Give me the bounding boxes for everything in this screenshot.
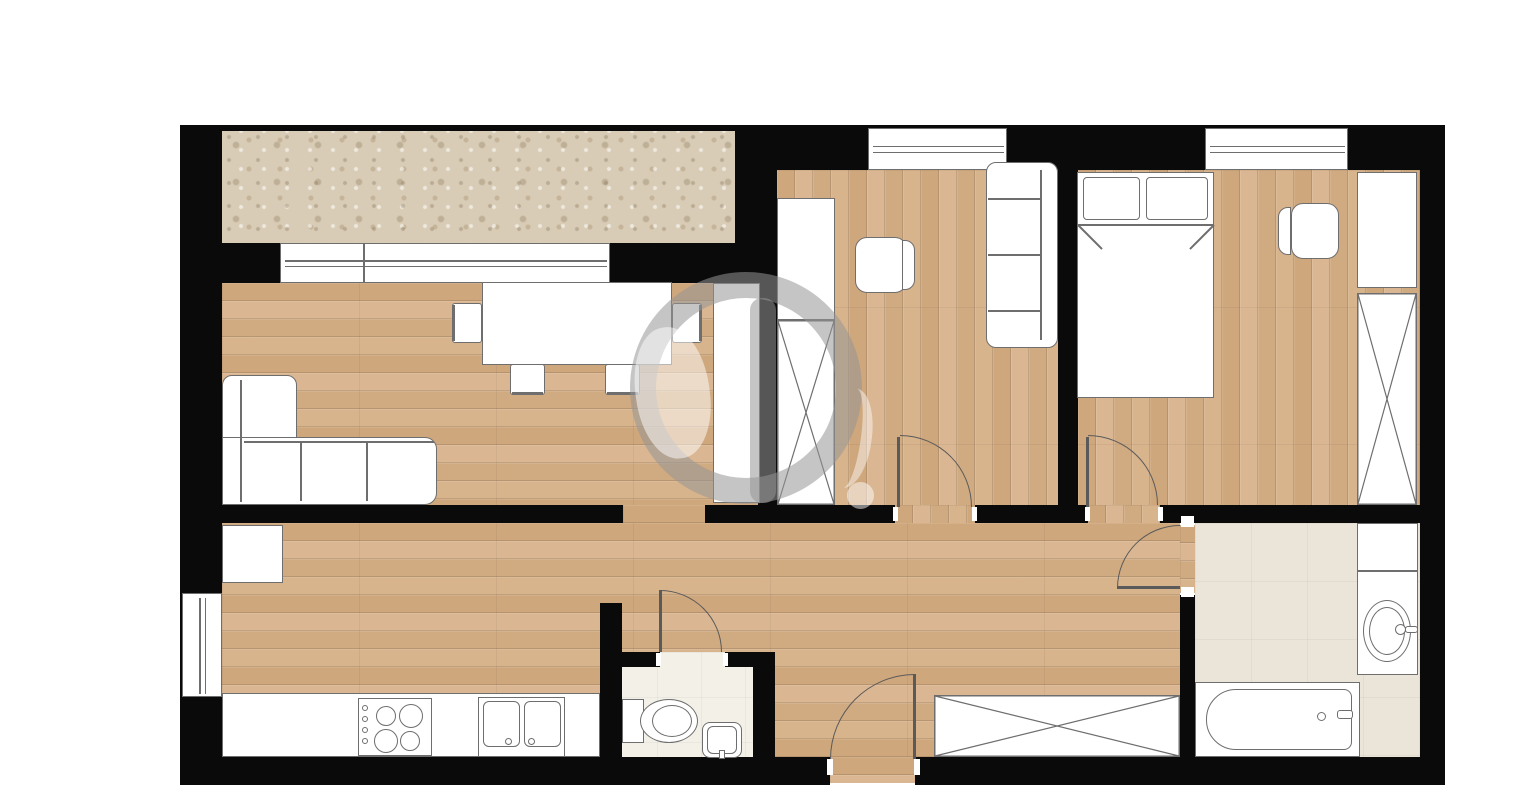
wall-kitchen-wc [600,603,622,757]
wall-mid-2 [705,505,895,523]
glass-line [873,146,1004,148]
bedroom-desk [1357,172,1417,288]
sofa-cushion-line-2 [366,441,368,501]
terrace-floor [222,128,735,243]
wc-sink-faucet [719,750,725,759]
study-window [868,128,1007,170]
stove-burner-3 [374,729,398,753]
sofa-backrest-line [240,380,242,502]
wall-study-bedroom [1058,170,1078,505]
hall-closet [934,695,1180,757]
stove-knob-3 [362,727,368,733]
glass-line [285,266,607,268]
sofa-body [222,437,437,505]
terrace-sliding-door [280,243,610,283]
jamb-wc-door-right [723,653,728,666]
glass-line [285,260,607,262]
study-chair-back [902,240,915,290]
jamb-entrance-right [914,759,920,775]
study-sofa-arm-bottom-line [988,310,1041,312]
jamb-bedroom-door-right [1158,507,1163,521]
jamb-study-door-left [893,507,898,521]
stove-burner-4 [400,731,420,751]
wall-terrace-right [735,131,777,283]
wall-bath-left [1180,595,1195,757]
study-door-floor [895,505,975,523]
stove-burner-2 [399,704,423,728]
glass-line [199,598,201,694]
toilet-bowl-inner [652,705,692,737]
wall-wc-top-left [622,652,660,667]
dining-chair-bottom-1 [510,364,545,395]
jamb-bedroom-door-left [1085,507,1090,521]
jamb-entrance-left [827,759,833,775]
bathroom-door-floor [1180,525,1195,593]
floor-plan-canvas [0,0,1520,785]
kitchen-sink-basin-1 [483,701,520,747]
jamb-study-door-right [972,507,977,521]
bed-blanket-line [1077,224,1214,226]
dining-chair-left [452,303,482,343]
bathtub-faucet [1337,710,1353,719]
jamb-wc-door-left [656,653,661,666]
jamb-bath-door-bottom [1181,587,1194,597]
stove-knob-1 [362,705,368,711]
glass-line [1210,152,1345,154]
bedroom-chair-seat [1291,203,1339,259]
wall-mid-3 [975,505,1088,523]
terrace-door-divider [363,243,365,283]
kitchen-window [182,593,222,697]
watermark-dot [847,482,874,509]
wall-bottom-left [180,757,830,785]
wall-right [1420,170,1445,785]
wall-mid-4 [1160,505,1420,523]
bathtub-inner [1206,689,1352,750]
bath-faucet-spout [1405,626,1418,633]
wall-under-terrace-left [222,243,280,283]
entrance-door-floor [830,757,915,783]
glass-line [873,152,1004,154]
kitchen-tall-unit [222,525,283,583]
bathtub-drain [1317,712,1326,721]
bed-pillow-2 [1146,177,1208,220]
dining-chair-left-back [452,305,455,341]
glass-line [1210,146,1345,148]
sofa-seat-line [244,441,434,443]
stove-knob-2 [362,716,368,722]
kitchen-sink-drain-1 [505,738,512,745]
wall-wc-top-right [725,652,753,667]
sofa-cushion-line-1 [300,441,302,501]
bedroom-door-floor [1088,505,1160,523]
study-sofa-cushion-line [988,254,1041,256]
wall-mid-1 [180,505,623,523]
bath-vanity-line [1358,570,1417,572]
bedroom-wardrobe [1357,293,1417,505]
glass-line [205,598,207,694]
stove-knob-4 [362,738,368,744]
jamb-bath-door-top [1181,516,1194,527]
watermark-bar [750,298,776,503]
bed-pillow-1 [1083,177,1140,220]
stove-burner-1 [376,706,396,726]
dining-chair-bottom-1-back [512,392,543,395]
study-chair-seat [855,237,907,293]
bedroom-window [1205,128,1348,170]
wall-terrace-top [222,125,735,131]
kitchen-sink-drain-2 [528,738,535,745]
bedroom-chair-back [1278,207,1291,255]
wall-wc-right [753,652,775,757]
wall-bottom-right [915,757,1445,785]
passage-floor [623,505,705,523]
study-sofa-arm-top-line [988,198,1041,200]
